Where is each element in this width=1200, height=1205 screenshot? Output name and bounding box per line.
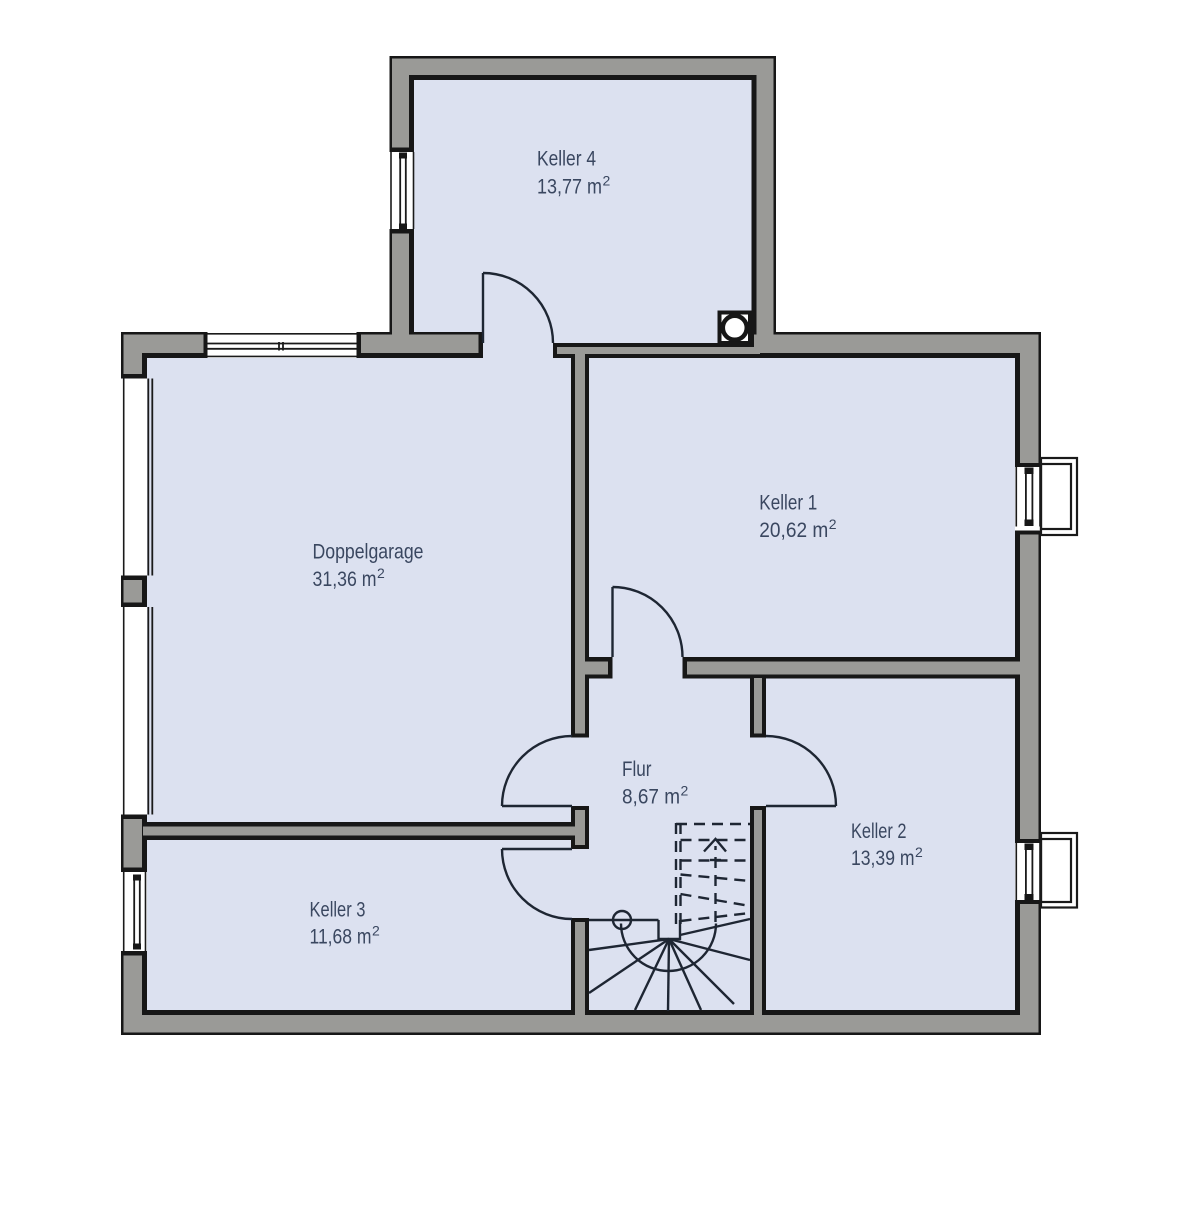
svg-text:Keller 1: Keller 1 (759, 491, 817, 515)
svg-text:2: 2 (377, 565, 385, 581)
svg-text:11,68 m: 11,68 m (310, 925, 372, 949)
svg-text:2: 2 (915, 844, 923, 860)
svg-text:Doppelgarage: Doppelgarage (313, 540, 424, 564)
svg-text:2: 2 (372, 923, 380, 939)
svg-text:2: 2 (681, 783, 689, 799)
svg-text:20,62 m: 20,62 m (759, 518, 828, 542)
svg-text:Flur: Flur (622, 757, 652, 781)
svg-text:2: 2 (603, 173, 611, 189)
svg-text:13,77 m: 13,77 m (537, 175, 602, 199)
svg-text:2: 2 (829, 516, 837, 532)
svg-text:Keller 4: Keller 4 (537, 147, 596, 171)
svg-text:8,67 m: 8,67 m (622, 785, 680, 809)
svg-text:Keller 2: Keller 2 (851, 819, 907, 843)
svg-text:Keller 3: Keller 3 (310, 898, 366, 922)
svg-text:13,39 m: 13,39 m (851, 846, 915, 870)
svg-text:31,36 m: 31,36 m (313, 567, 377, 591)
